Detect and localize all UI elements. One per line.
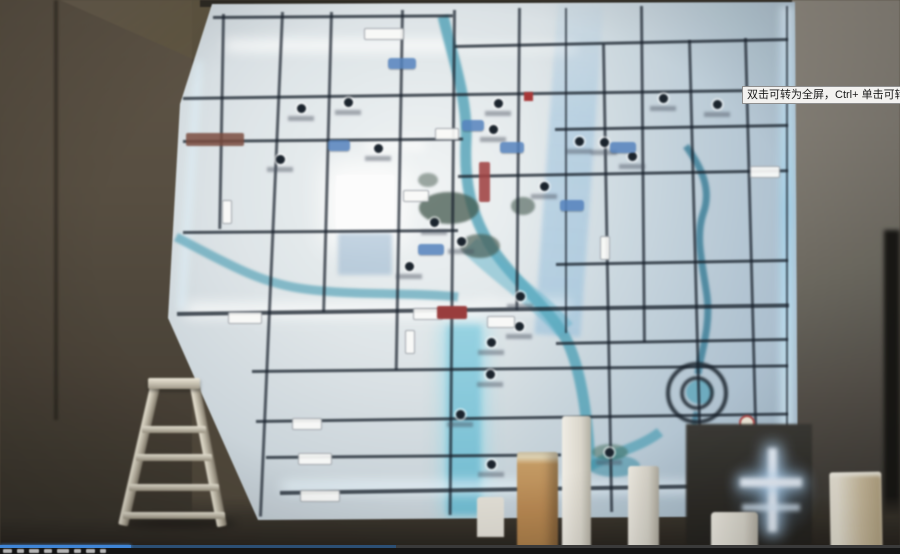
controls-text-remnant — [74, 549, 81, 553]
poi-marker — [405, 262, 414, 271]
poi-marker — [456, 410, 465, 419]
controls-text-remnant — [3, 549, 12, 553]
controls-strip[interactable] — [0, 548, 900, 554]
player-control-bar — [0, 545, 900, 554]
road-name-label — [750, 166, 780, 178]
road-name-label — [298, 453, 332, 465]
blue-label — [388, 58, 416, 69]
controls-text-remnant — [29, 549, 39, 553]
light-leak-horizontal-2 — [742, 504, 800, 511]
road-name-label-vertical — [600, 236, 610, 260]
poi-marker — [489, 125, 498, 134]
red-logo-marker — [524, 92, 533, 101]
road-name-label — [228, 312, 262, 324]
poi-marker — [628, 152, 637, 161]
pillar-white-tall — [562, 416, 591, 554]
video-frame: 双击可转为全屏，Ctrl+ 单击可转为 — [0, 0, 900, 554]
ladder-rung — [142, 426, 206, 433]
red-vertical-banner — [479, 162, 490, 202]
river-west — [176, 237, 458, 297]
road-name-label — [487, 316, 515, 328]
wall-seam — [54, 0, 58, 420]
pillar-white-mid — [628, 466, 659, 554]
ladder-rung — [123, 512, 225, 519]
poi-marker — [276, 155, 285, 164]
controls-text-remnant — [57, 549, 69, 553]
poi-marker — [457, 237, 466, 246]
blue-label — [500, 142, 524, 153]
park-central-2 — [460, 234, 500, 258]
blue-label — [610, 142, 636, 153]
pillar-tan — [517, 452, 558, 554]
poi-marker — [515, 322, 524, 331]
road-name-label — [300, 490, 340, 502]
park-small-2 — [418, 173, 438, 187]
poi-marker — [297, 104, 306, 113]
road-name-label-vertical — [405, 330, 415, 354]
road-name-label — [435, 128, 459, 140]
road-name-label — [292, 418, 322, 430]
poi-marker — [575, 137, 584, 146]
controls-text-remnant — [100, 549, 106, 553]
controls-text-remnant — [17, 549, 24, 553]
poi-marker — [713, 100, 722, 109]
poi-marker — [516, 292, 525, 301]
poi-marker — [540, 182, 549, 191]
step-ladder — [118, 370, 248, 528]
video-viewport[interactable] — [0, 0, 900, 554]
ladder-rung — [129, 484, 219, 491]
blue-label — [462, 120, 484, 131]
poi-marker — [600, 138, 609, 147]
poi-marker — [487, 460, 496, 469]
poi-marker — [430, 218, 439, 227]
road-name-label — [364, 28, 404, 40]
ladder-rung — [136, 454, 212, 461]
pillar-small — [477, 497, 504, 537]
road-vertical — [565, 8, 567, 333]
poi-marker — [374, 144, 383, 153]
road-name-label-vertical — [222, 200, 232, 224]
blue-label — [328, 140, 350, 151]
blue-label — [560, 200, 584, 211]
road-name-label — [403, 190, 429, 202]
ladder-top-platform — [148, 378, 200, 389]
poi-marker — [659, 94, 668, 103]
blue-label — [418, 244, 444, 255]
red-location-label — [437, 306, 467, 319]
controls-text-remnant — [44, 549, 52, 553]
light-leak-horizontal — [740, 478, 802, 487]
controls-text-remnant — [86, 549, 95, 553]
poi-marker — [487, 338, 496, 347]
poi-marker — [494, 99, 503, 108]
light-leak-vertical — [768, 448, 777, 532]
red-road-label-west — [186, 133, 244, 146]
poi-marker — [605, 448, 614, 457]
poi-marker — [344, 98, 353, 107]
fullscreen-tooltip: 双击可转为全屏，Ctrl+ 单击可转为 — [742, 86, 900, 104]
pillar-cream-right — [829, 472, 882, 554]
poi-marker — [486, 370, 495, 379]
park-small — [511, 197, 535, 215]
